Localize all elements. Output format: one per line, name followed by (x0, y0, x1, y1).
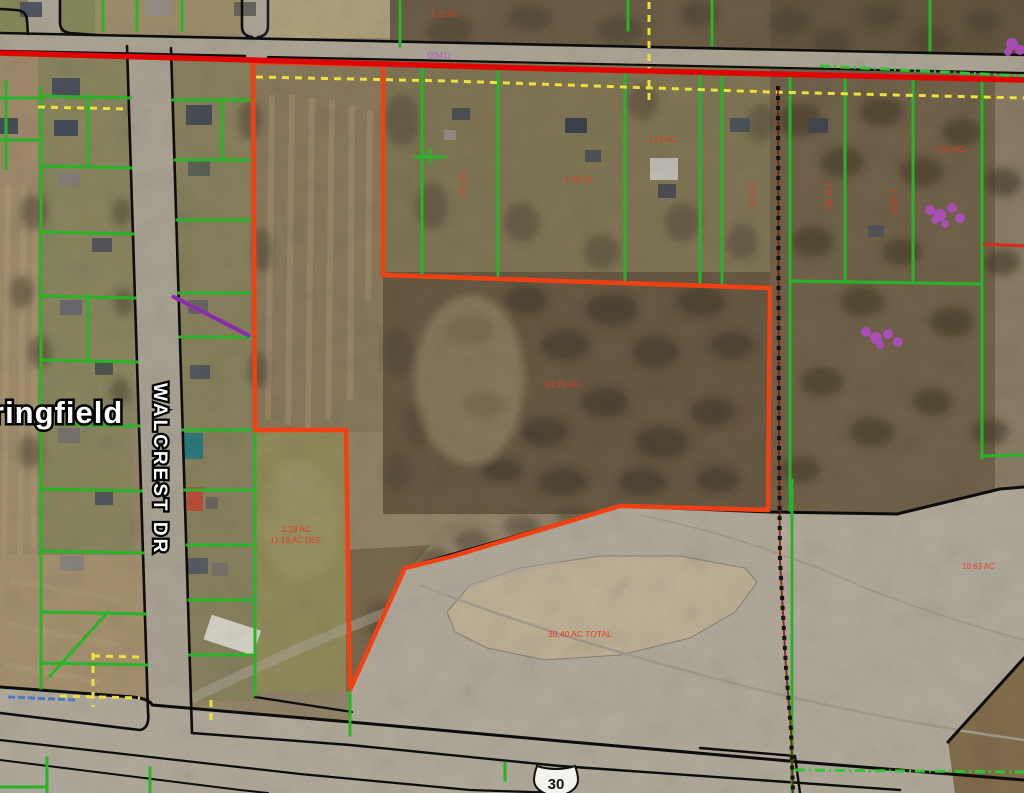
acreage-label-total: 30.40 AC TOTAL (548, 629, 612, 639)
acreage-label: 1.50 AC (936, 145, 965, 154)
acreage-label: 2.29 AC (282, 525, 311, 534)
parcel-line-red-segment (983, 244, 1024, 246)
acreage-label: 0.75 AC (747, 181, 756, 210)
acreage-label: 1.21 AC (648, 135, 677, 144)
acreage-label-subject: 16.23 AC (545, 379, 580, 389)
acreage-label: 1.11 AC (824, 182, 833, 210)
acreage-label: 2.11 AC (431, 10, 459, 19)
acreage-label: 1.56 AC (565, 175, 594, 184)
route-number: 30 (548, 776, 565, 793)
map-canvas[interactable]: (2341) 2.11 AC 1.02 AC 1.56 AC 1.21 AC 0… (0, 0, 1024, 793)
aerial-map[interactable]: (2341) 2.11 AC 1.02 AC 1.56 AC 1.21 AC 0… (0, 0, 1024, 793)
city-label: ringfield (0, 395, 123, 430)
acreage-label: 1.02 AC (458, 170, 467, 199)
street-label-walcrest: WALCREST DR (149, 383, 170, 555)
acreage-label: 10.63 AC (962, 562, 995, 571)
acreage-label: 12.19 AC DEF (270, 536, 321, 545)
utility-label: (2341) (427, 51, 450, 60)
acreage-label: 1.48 AC (889, 189, 898, 218)
us-route-shield: 30 (534, 766, 578, 793)
